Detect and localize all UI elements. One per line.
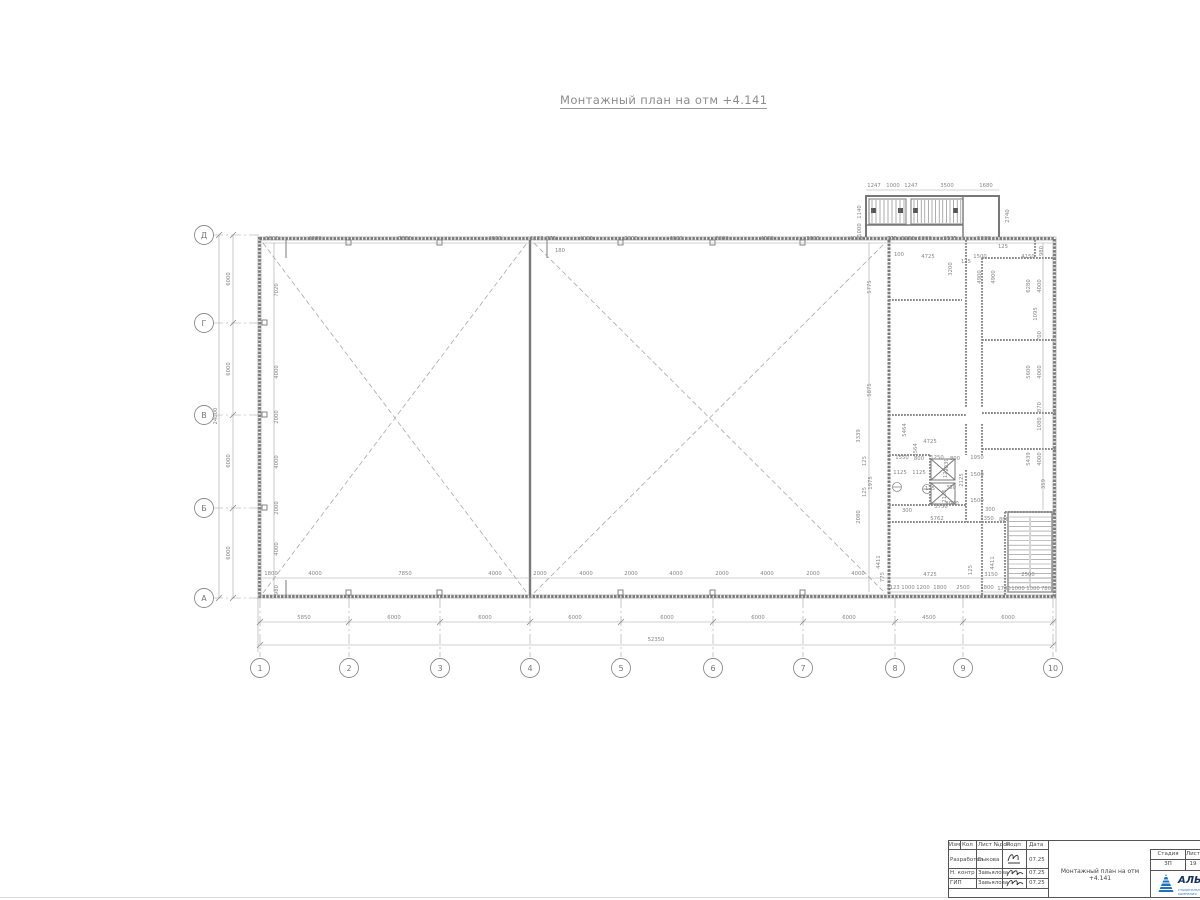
titleblock-line <box>948 888 1048 889</box>
dim-label: 4000 <box>308 571 322 577</box>
dim-label: 870 <box>1037 401 1043 412</box>
dim-label: 1700 <box>997 586 1011 592</box>
dim-label: 2000 <box>274 410 280 424</box>
axis-label: 4 <box>527 664 532 673</box>
dim-label: 980 <box>274 584 280 595</box>
dim-label: 1125 <box>912 470 925 476</box>
dim-label: 1800 <box>980 585 994 591</box>
dim-label: 3500 <box>940 183 954 189</box>
dim-label: 1800 <box>265 236 279 242</box>
tb-name: Завьялова <box>978 880 1008 886</box>
dim-label: 1123 <box>886 585 899 591</box>
dim-label: 1125 <box>893 470 906 476</box>
titleblock-line <box>948 868 1048 869</box>
dim-label: 5775 <box>867 280 873 293</box>
dim-label: 2080 <box>856 510 862 524</box>
dim-label: 6280 <box>1026 279 1032 293</box>
dim-label: 1095 <box>1033 307 1039 320</box>
dim-label: 4150 <box>1021 254 1035 260</box>
dim-label: 24000 <box>213 407 219 424</box>
dim-label: 1000 <box>1026 586 1040 592</box>
dim-label: 4000 <box>669 236 683 242</box>
dim-label: 800 <box>950 456 961 462</box>
dim-label: 4411 <box>990 556 996 569</box>
dim-label: 4000 <box>579 571 593 577</box>
dim-label: 2000 <box>624 571 638 577</box>
dim-label: 125 <box>998 244 1008 250</box>
dim-label: 2000 <box>624 236 638 242</box>
dim-label: 125 <box>862 487 868 497</box>
dim-label: 100 <box>894 252 905 258</box>
dim-label: 880 <box>999 517 1010 523</box>
dim-label: 1000 <box>1011 586 1025 592</box>
dim-label: 1150 <box>901 236 915 242</box>
dim-label: 2740 <box>1005 209 1011 223</box>
dim-label: 7850 <box>398 236 412 242</box>
axis-label: В <box>201 411 207 420</box>
dim-label: 1000 <box>901 585 915 591</box>
dim-label: 775 <box>546 236 556 242</box>
tb-role: Н. контр <box>950 870 975 876</box>
dim-label: 4000 <box>849 236 863 242</box>
axis-label: 10 <box>1048 664 1058 673</box>
dim-label: 6000 <box>1001 615 1015 621</box>
dim-label: 800 <box>914 456 925 462</box>
dim-label: 1247 <box>867 183 880 189</box>
dim-label: 125 <box>943 468 949 478</box>
dim-label: 6000 <box>226 454 232 468</box>
brace-cross-right-bay <box>534 243 885 593</box>
dim-label: 6000 <box>751 615 765 621</box>
axis-label: 1 <box>257 664 262 673</box>
dim-label: 4000 <box>851 571 865 577</box>
dim-label: 5564 <box>913 443 919 457</box>
tb-header-izm: Изм <box>949 842 960 848</box>
dim-label: 775 <box>887 236 897 242</box>
logo-subtext: строительная компания <box>1178 888 1200 896</box>
dim-label: 125 <box>961 259 971 265</box>
titleblock-line <box>948 840 1200 841</box>
axis-label: 3 <box>437 664 442 673</box>
staircase-bottom-right <box>1008 512 1052 592</box>
dim-label: 1000 <box>918 236 932 242</box>
dim-label: 6000 <box>226 362 232 376</box>
dim-label: 6000 <box>842 615 856 621</box>
tb-date: 07.25 <box>1029 880 1045 886</box>
axis-label: 8 <box>892 664 897 673</box>
dim-label: 1250 <box>930 455 944 461</box>
titleblock-line <box>1150 870 1200 871</box>
titleblock-line <box>1048 840 1049 897</box>
dim-label: 1500 <box>973 254 987 260</box>
dim-label: 2000 <box>806 236 820 242</box>
dim-label: 1000 <box>886 183 900 189</box>
dim-label: 1380 <box>977 236 991 242</box>
dim-label: 1800 <box>933 585 947 591</box>
axis-label: Д <box>201 231 207 240</box>
tb-sheet-value: 19 <box>1186 861 1200 867</box>
dim-label: 6000 <box>478 615 492 621</box>
dim-label: 4000 <box>488 571 502 577</box>
dim-label: 4000 <box>579 236 593 242</box>
dim-label: 125 <box>862 456 868 466</box>
dim-label: 6000 <box>387 615 401 621</box>
dim-label: 1140 <box>857 205 863 219</box>
axis-label: 6 <box>710 664 715 673</box>
dim-label: 180 <box>555 248 566 254</box>
titleblock-line <box>948 849 1048 850</box>
top-annex <box>866 196 999 237</box>
dim-label: 5439 <box>1026 452 1032 465</box>
company-logo: АЛЬЯНС строительная компания <box>1156 872 1200 896</box>
dim-label: 4900 <box>991 270 997 284</box>
dim-label: 5762 <box>930 516 943 522</box>
dim-label: 3339 <box>856 429 862 442</box>
tb-stage-label: Стадия <box>1151 851 1185 857</box>
dim-label: 3200 <box>948 262 954 276</box>
dim-label: 6000 <box>226 546 232 560</box>
dim-label: 4900 <box>977 270 983 284</box>
main-internal-walls <box>286 240 889 595</box>
dim-label: 5464 <box>902 423 908 437</box>
dim-label: 4000 <box>760 236 774 242</box>
axis-label: 5 <box>618 664 623 673</box>
dim-label: 6000 <box>660 615 674 621</box>
dim-label: 2500 <box>956 585 970 591</box>
tb-sheet-label: Лист <box>1186 851 1200 857</box>
dim-label: 4000 <box>760 571 774 577</box>
dim-label: 1500 <box>970 498 984 504</box>
dim-label: 2000 <box>274 501 280 515</box>
dim-label: 1950 <box>970 455 984 461</box>
dim-label: 6000 <box>226 272 232 286</box>
dim-label: 125 <box>925 486 935 492</box>
dim-label: 780 <box>1041 586 1052 592</box>
dim-label: 4000 <box>274 542 280 556</box>
dim-label: 2575 <box>943 236 956 242</box>
dim-label: 4000 <box>274 365 280 379</box>
building-outer-walls <box>258 237 1056 598</box>
tb-header-podp: Подп <box>1006 842 1021 848</box>
dim-label: 2000 <box>533 571 547 577</box>
axis-label: Г <box>202 319 207 328</box>
tb-name: Завьялова <box>978 870 1008 876</box>
dim-label: 4000 <box>274 455 280 469</box>
dim-label: 4000 <box>1037 279 1043 293</box>
dim-label: 2000 <box>806 571 820 577</box>
tb-header-kol: Кол <box>962 842 973 848</box>
dim-label: 980 <box>1039 245 1045 256</box>
dim-label: 1550 <box>895 455 909 461</box>
dim-label: 300 <box>902 508 913 514</box>
dim-label: 1350 <box>980 516 994 522</box>
titleblock: Изм Кол Лист №док Подп Дата Разработал Б… <box>948 840 1200 898</box>
dim-label: 52350 <box>648 637 665 643</box>
dim-label: 8000 <box>945 501 959 507</box>
dim-label: 4411 <box>876 555 882 568</box>
dim-label: 5850 <box>297 615 311 621</box>
titleblock-line <box>948 878 1048 879</box>
dim-label: 7850 <box>398 571 412 577</box>
dim-label: 1200 <box>916 585 930 591</box>
dim-label: 4000 <box>1037 452 1043 466</box>
wall-pilasters <box>262 240 805 595</box>
dim-label: 4000 <box>488 236 502 242</box>
dim-label: 125 <box>968 565 974 575</box>
axis-label: 7 <box>800 664 805 673</box>
tb-stage-value: ЗП <box>1151 861 1185 867</box>
dim-label: 1247 <box>904 183 917 189</box>
dim-label: 4000 <box>308 236 322 242</box>
dim-label: 6000 <box>568 615 582 621</box>
dim-label: 7020 <box>274 283 280 297</box>
dim-label: 2000 <box>715 236 729 242</box>
titleblock-line <box>948 840 949 897</box>
dim-label: 1975 <box>868 476 874 489</box>
dim-label: 4500 <box>922 615 936 621</box>
dim-label: 4725 <box>923 572 936 578</box>
dim-label: 1500 <box>970 472 984 478</box>
logo-triangle-icon <box>1158 874 1174 893</box>
dim-label: 359 <box>1041 479 1047 489</box>
dim-label: 700 <box>1037 330 1043 341</box>
tb-date: 07.25 <box>1029 857 1045 863</box>
titleblock-line <box>1150 859 1200 860</box>
dim-label: 5875 <box>867 383 873 396</box>
dim-label: 4000 <box>669 571 683 577</box>
tb-header-data: Дата <box>1029 842 1043 848</box>
dim-label: 1080 <box>1037 417 1043 431</box>
dim-label: 2000 <box>715 571 729 577</box>
axis-label: 2 <box>346 664 351 673</box>
tb-name: Быкова <box>978 857 999 863</box>
dim-label: 5600 <box>1026 365 1032 379</box>
titleblock-line <box>948 897 1200 898</box>
tb-date: 07.25 <box>1029 870 1045 876</box>
tb-doc-title: Монтажный план на отм +4.141 <box>1050 868 1150 882</box>
axis-label: Б <box>201 504 207 513</box>
brace-cross-left-bay <box>263 243 527 593</box>
dim-label: 350 <box>946 485 957 491</box>
titleblock-line <box>1026 840 1027 888</box>
dim-label: 1800 <box>264 571 278 577</box>
dim-label: 1125 <box>530 236 543 242</box>
dim-label: 4725 <box>921 254 934 260</box>
axis-label: 9 <box>960 664 965 673</box>
logo-text: АЛЬЯНС <box>1178 875 1200 886</box>
axis-label: А <box>201 594 207 603</box>
dim-label: 300 <box>985 507 996 513</box>
dim-label: 1000 <box>857 223 863 237</box>
dim-label: 2500 <box>1021 572 1035 578</box>
titleblock-line <box>976 840 977 888</box>
dim-label: 1680 <box>979 183 993 189</box>
floor-plan-canvas: 12345678910ДГВБА124710001247350016801140… <box>0 0 1200 900</box>
dim-label: 4725 <box>923 439 936 445</box>
dim-label: 3150 <box>984 572 998 578</box>
titleblock-line <box>1150 849 1200 850</box>
tb-role: ГИП <box>950 880 962 886</box>
dim-label: 775 <box>880 572 886 582</box>
drawing-sheet: { "title": "Монтажный план на отм +4.141… <box>0 0 1200 900</box>
dim-label: 2125 <box>959 473 965 486</box>
dim-label: 4000 <box>1037 365 1043 379</box>
